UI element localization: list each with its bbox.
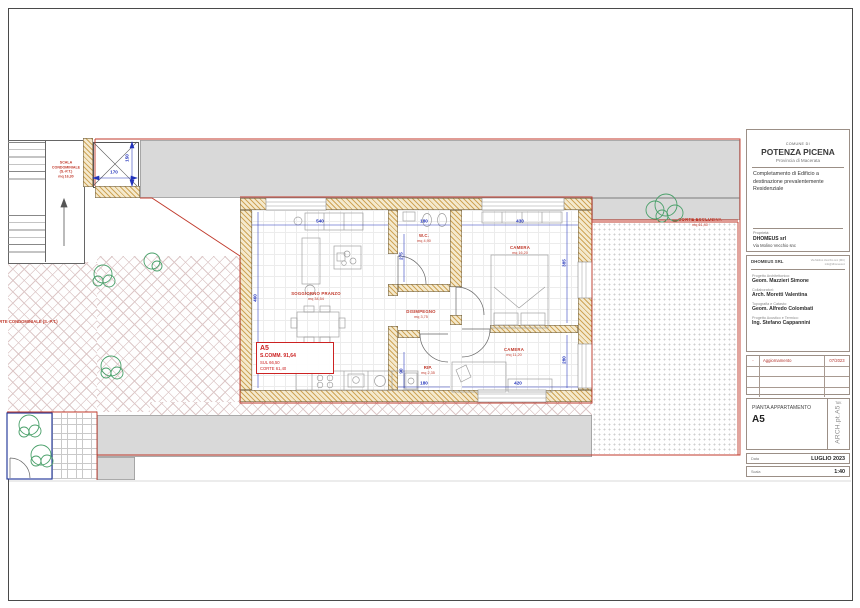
dimension-lift-width: 170 — [110, 170, 118, 175]
revision-row: - Aggiornamento 07/2023 — [747, 356, 849, 367]
revision-row-empty — [747, 367, 849, 378]
firm-name: DHOMEUS SRL — [751, 259, 783, 267]
owner-label: Proprietà: — [753, 231, 843, 235]
dimension-camera2-width: 420 — [514, 381, 522, 386]
file-code-vertical: ARCH.pt.A5 — [828, 399, 849, 449]
corte-esclusiva-label: CORTE ESCLUSIVA mq 61,40 — [678, 217, 722, 227]
dimension-camera1-width: 430 — [516, 219, 524, 224]
dimension-lift-height: 150 — [125, 154, 130, 162]
room-label-wc: W.C. mq 4,90 — [417, 233, 431, 243]
room-label-camera-1: CAMERA mq 16,20 — [510, 245, 530, 255]
designers-box: DHOMEUS SRL Via Molino Vecchio snc (MC) … — [746, 255, 850, 352]
comune-name: POTENZA PICENA — [747, 147, 849, 157]
owner-block: Proprietà: DHOMEUS srl Via Molino Vecchi… — [753, 228, 843, 248]
dimension-soggiorno-height: 460 — [253, 294, 258, 302]
project-description: Completamento di Edificio a destinazione… — [753, 171, 843, 194]
revision-table: - Aggiornamento 07/2023 — [746, 355, 850, 395]
boundary-lines — [7, 139, 740, 480]
divider — [752, 167, 844, 168]
room-label-disimpegno: DISIMPEGNO mq 3,75 — [406, 309, 435, 319]
tav-column: TAV. ARCH.pt.A5 — [827, 399, 849, 449]
apartment-info-box: A5 S.COMM. 91,64 SUL 66,50 CORTE 61,40 — [256, 342, 334, 374]
title-block: COMUNE DI POTENZA PICENA Provincia di Ma… — [746, 129, 850, 478]
stair-direction-arrow — [61, 199, 67, 246]
designer-entry: Progetto Architettonico: Geom. Mazzieri … — [752, 274, 844, 285]
corte-condominiale-label: CORTE CONDOMINIALE (S.-P.T.) — [0, 319, 58, 324]
scale-row: Scala 1:40 — [746, 466, 850, 477]
owner-name: DHOMEUS srl — [753, 236, 843, 242]
lift-cross-icon — [93, 142, 137, 186]
dimension-camera1-height: 385 — [562, 259, 567, 267]
plant-symbols — [19, 194, 683, 467]
dimension-rip-height: 90 — [399, 368, 404, 373]
designer-entry: Progetto Acustico e Termico: Ing. Stefan… — [752, 316, 844, 327]
designer-entry: Collaboratori: Arch. Moretti Valentina — [752, 288, 844, 299]
drawing-sheet: SCALA CONDOMINIALE (S.-P.T.) mq 16,30 CO… — [0, 0, 860, 608]
stairwell-label: SCALA CONDOMINIALE (S.-P.T.) mq 16,30 — [52, 161, 80, 180]
owner-address: Via Molino Vecchio snc — [753, 243, 843, 248]
date-row: Data LUGLIO 2023 — [746, 453, 850, 464]
revision-row-empty — [747, 388, 849, 398]
room-label-camera-2: CAMERA mq 11,20 — [504, 347, 524, 357]
firm-header: DHOMEUS SRL Via Molino Vecchio snc (MC) … — [751, 259, 845, 267]
drawing-title-box: PIANTA APPARTAMENTO A5 TAV. ARCH.pt.A5 — [746, 398, 850, 450]
room-label-rip: RIP. mq 2,35 — [421, 365, 435, 375]
plan-linework — [0, 0, 860, 608]
room-label-soggiorno: SOGGIORNO PRANZO mq 34,54 — [291, 291, 341, 301]
dimension-wc-height: 275 — [399, 252, 404, 260]
dimension-soggiorno-width: 540 — [316, 219, 324, 224]
dimension-camera2-height: 280 — [562, 356, 567, 364]
firm-contacts: Via Molino Vecchio snc (MC) info@dhomeus… — [811, 259, 845, 267]
divider — [753, 228, 843, 229]
dimension-wc-width: 180 — [420, 219, 428, 224]
provincia-label: Provincia di Macerata — [747, 158, 849, 163]
comune-small-label: COMUNE DI — [747, 142, 849, 146]
designer-entry: Topografia e Catasto: Geom. Alfredo Colo… — [752, 302, 844, 313]
commission-box: COMUNE DI POTENZA PICENA Provincia di Ma… — [746, 129, 850, 252]
revision-row-empty — [747, 377, 849, 388]
dimension-rip-width: 180 — [420, 381, 428, 386]
divider — [751, 269, 845, 270]
